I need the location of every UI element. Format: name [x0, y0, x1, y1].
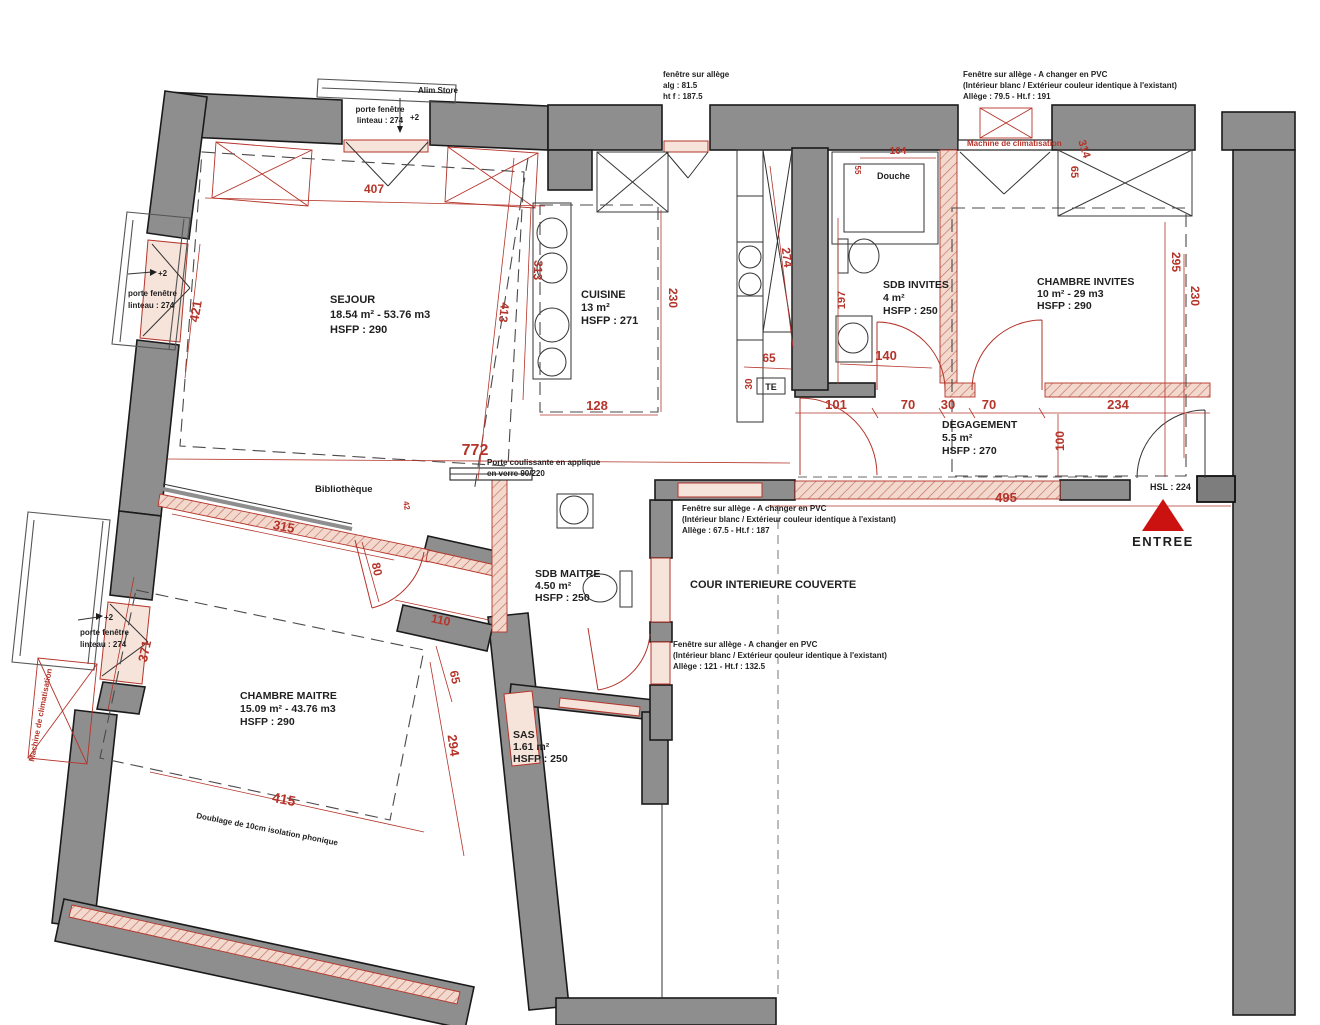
- porte-fenetre-wing-l1: porte fenêtre: [80, 628, 129, 637]
- dim-70b: 70: [982, 397, 996, 412]
- left-window-frame-upper-line: [120, 220, 133, 342]
- wall-top-left-b: [430, 101, 548, 150]
- porte-fenetre-top-l1: porte fenêtre: [356, 105, 405, 114]
- dim-30-mid: 30: [941, 397, 955, 412]
- degagement-name: DEGAGEMENT: [942, 419, 1018, 431]
- wall-cour-c: [650, 685, 672, 740]
- chambre-maitre-hsfp: HSFP : 290: [240, 716, 295, 728]
- wall-left-low: [110, 511, 161, 600]
- chambre-maitre-name: CHAMBRE MAITRE: [240, 690, 337, 702]
- window-cour-a: [651, 558, 670, 622]
- dim-100: 100: [1053, 431, 1067, 451]
- sas-area: 1.61 m²: [513, 741, 550, 753]
- kitchen-counter-left: [533, 203, 571, 379]
- sejour-name: SEJOUR: [330, 294, 375, 306]
- dim-30-te: 30: [744, 378, 755, 390]
- window-sejour-top: [344, 140, 428, 152]
- door-sdb-maitre: [588, 628, 650, 690]
- wall-cour-b: [650, 622, 672, 642]
- wall-top-center: [710, 105, 958, 150]
- dim-65-maitre: 65: [447, 669, 464, 685]
- machine-clim-top-label: Machine de climatisation: [967, 139, 1062, 148]
- pvc-top-l2: (Intérieur blanc / Extérieur couleur ide…: [963, 81, 1177, 90]
- partition-degagement-pier: [945, 383, 975, 397]
- sink-invites: [836, 316, 872, 362]
- room-label-cuisine: CUISINE 13 m² HSFP : 271: [581, 289, 638, 327]
- dim-274: 274: [779, 247, 796, 269]
- wall-wing-left: [52, 710, 117, 928]
- wall-top-notch-upper: [548, 105, 662, 150]
- room-label-chambre-invites: CHAMBRE INVITES 10 m² - 29 m3 HSFP : 290: [1037, 276, 1134, 312]
- plus2-arrow-wing: [78, 617, 98, 620]
- cuisine-name: CUISINE: [581, 289, 626, 301]
- dim-230-invites: 230: [1188, 286, 1202, 306]
- room-label-sdb-invites: SDB INVITES 4 m² HSFP : 250: [883, 279, 949, 317]
- pvc-mid-l3: Allège : 67.5 - Ht.f : 187: [682, 526, 770, 535]
- dim-101: 101: [825, 397, 847, 412]
- machine-clim-box-top-right: [980, 108, 1032, 138]
- sink-maitre: [557, 494, 593, 528]
- fixtures-layer: [450, 150, 938, 607]
- chambre-invites-area: 10 m² - 29 m3: [1037, 288, 1104, 300]
- wall-left-low2: [97, 682, 145, 714]
- fenetre-allege-l1: fenêtre sur allège: [663, 70, 730, 79]
- dim-128: 128: [586, 398, 608, 413]
- dim-295: 295: [1169, 252, 1183, 272]
- pvc-mid-l2: (Intérieur blanc / Extérieur couleur ide…: [682, 515, 896, 524]
- chambre-invites-hsfp: HSFP : 290: [1037, 300, 1092, 312]
- partition-sdb-chambre-invites: [940, 150, 957, 383]
- room-label-cour: COUR INTERIEURE COUVERTE: [690, 579, 856, 591]
- dim-65-invites: 65: [1068, 166, 1080, 178]
- sdb-invites-name: SDB INVITES: [883, 279, 949, 291]
- dim-42: 42: [401, 500, 412, 511]
- dim-80: 80: [369, 561, 386, 577]
- te-label: TE: [765, 382, 777, 392]
- pvc-mid-l1: Fenêtre sur allège - A changer en PVC: [682, 504, 827, 513]
- sdb-invites-hsfp: HSFP : 250: [883, 305, 938, 317]
- partition-entry-wall: [795, 481, 1060, 499]
- sdb-maitre-area: 4.50 m²: [535, 580, 572, 592]
- labels-layer: SEJOUR 18.54 m² - 53.76 m3 HSFP : 290 CU…: [27, 70, 1202, 848]
- porte-fenetre-left-l1: porte fenêtre: [128, 289, 177, 298]
- dim-407: 407: [364, 182, 384, 196]
- window-cuisine-top: [664, 141, 708, 152]
- dim-230-cuisine: 230: [666, 288, 680, 308]
- shower-douche: [832, 152, 938, 244]
- sdb-maitre-name: SDB MAITRE: [535, 568, 600, 580]
- porte-coulissante-l1: Porte coulissante en applique: [487, 458, 601, 467]
- dashed-chambre-invites: [952, 208, 1186, 476]
- pvc-bottom-l3: Allège : 121 - Ht.f : 132.5: [673, 662, 766, 671]
- door-entry: [1137, 410, 1205, 478]
- wall-top-right: [1052, 105, 1195, 150]
- degagement-hsfp: HSFP : 270: [942, 445, 997, 457]
- dim-315: 315: [272, 517, 296, 536]
- dim-104: 104: [890, 146, 907, 157]
- dim-65-cuisine: 65: [762, 351, 776, 365]
- dim-55: 55: [853, 166, 862, 175]
- door-chambre-invites: [972, 320, 1042, 390]
- windows-layer: [100, 140, 1052, 766]
- porte-coulissante-l2: en verre 90/220: [487, 469, 545, 478]
- doublage-sdbm-left: [492, 470, 507, 632]
- partition-degagement-right: [1045, 383, 1210, 397]
- plus2-arrowhead-top: [397, 126, 403, 133]
- dim-234: 234: [1107, 397, 1129, 412]
- room-label-degagement: DEGAGEMENT 5.5 m² HSFP : 270: [942, 419, 1018, 457]
- machine-clim-wing-label: Machine de climatisation: [27, 668, 54, 763]
- fenetre-allege-l2: alg : 81.5: [663, 81, 698, 90]
- dim-70a: 70: [901, 397, 915, 412]
- dim-415: 415: [271, 789, 297, 809]
- wall-entry-mid: [1060, 480, 1130, 500]
- left-window-frame-lower-line: [20, 520, 34, 656]
- dim-197: 197: [836, 291, 848, 309]
- wardrobe-chambre-invites: [1058, 150, 1192, 216]
- plus2-top: +2: [410, 113, 420, 122]
- window-swing-cuisine: [666, 152, 708, 178]
- porte-fenetre-left-l2: linteau : 274: [128, 301, 175, 310]
- sdb-invites-area: 4 m²: [883, 292, 905, 304]
- dim-313: 313: [531, 260, 546, 281]
- wall-cour-a: [650, 500, 672, 558]
- wall-entry-right-stub: [1197, 476, 1235, 502]
- room-label-bibliotheque: Bibliothèque: [315, 484, 373, 495]
- wall-right-vertical: [1233, 150, 1295, 1015]
- wardrobe-sejour-left: [212, 142, 312, 206]
- wardrobe-cuisine: [597, 152, 668, 212]
- pvc-top-l3: Allège : 79.5 - Ht.f : 191: [963, 92, 1051, 101]
- window-entry-wall: [678, 483, 762, 497]
- alim-store-label: Alim Store: [418, 86, 459, 95]
- plus2-left: +2: [158, 269, 168, 278]
- room-label-sejour: SEJOUR 18.54 m² - 53.76 m3 HSFP : 290: [330, 294, 430, 336]
- cuisine-area: 13 m²: [581, 302, 610, 314]
- entree-label: ENTREE: [1132, 534, 1194, 549]
- chambre-invites-name: CHAMBRE INVITES: [1037, 276, 1134, 288]
- wardrobes-layer: [212, 142, 1192, 216]
- fenetre-allege-l3: ht f : 187.5: [663, 92, 703, 101]
- entry-marker: [1142, 499, 1184, 531]
- hsl-label: HSL : 224: [1150, 482, 1191, 492]
- cuisine-hsfp: HSFP : 271: [581, 315, 638, 327]
- dim-421: 421: [186, 299, 205, 323]
- dim-413: 413: [496, 302, 512, 324]
- wall-top-notch-lower: [548, 150, 592, 190]
- wall-right-stub: [1222, 112, 1295, 150]
- room-label-chambre-maitre: CHAMBRE MAITRE 15.09 m² - 43.76 m3 HSFP …: [240, 690, 337, 728]
- dim-772: 772: [462, 442, 489, 459]
- dim-371: 371: [135, 639, 154, 663]
- wall-wing-right: [488, 613, 569, 1010]
- window-swing-invites: [960, 152, 1050, 194]
- dim-495: 495: [995, 490, 1017, 505]
- porte-fenetre-wing-l2: linteau : 274: [80, 640, 127, 649]
- pvc-bottom-l1: Fenêtre sur allège - A changer en PVC: [673, 640, 818, 649]
- wall-cour-bottom: [556, 998, 776, 1025]
- entry-arrow-icon: [1142, 499, 1184, 531]
- doublage-label: Doublage de 10cm isolation phonique: [196, 811, 340, 847]
- floor-plan-drawing: SEJOUR 18.54 m² - 53.76 m3 HSFP : 290 CU…: [0, 0, 1320, 1025]
- room-label-sdb-maitre: SDB MAITRE 4.50 m² HSFP : 250: [535, 568, 600, 604]
- sejour-area: 18.54 m² - 53.76 m3: [330, 309, 430, 321]
- wall-kitchen-sdb: [792, 148, 828, 390]
- window-cour-b: [651, 642, 670, 684]
- sejour-hsfp: HSFP : 290: [330, 324, 387, 336]
- room-label-douche: Douche: [877, 171, 910, 181]
- dashed-zones-layer: [100, 152, 1186, 996]
- pvc-top-l1: Fenêtre sur allège - A changer en PVC: [963, 70, 1108, 79]
- dim-294: 294: [445, 734, 463, 758]
- sas-hsfp: HSFP : 250: [513, 753, 568, 765]
- chambre-maitre-area: 15.09 m² - 43.76 m3: [240, 703, 336, 715]
- plus2-wing: +2: [104, 613, 114, 622]
- dim-140: 140: [875, 348, 897, 363]
- floor-plan-page: SEJOUR 18.54 m² - 53.76 m3 HSFP : 290 CU…: [0, 0, 1320, 1025]
- sas-name: SAS: [513, 729, 535, 741]
- walls-layer: [52, 91, 1295, 1025]
- porte-fenetre-top-l2: linteau : 274: [357, 116, 404, 125]
- pvc-bottom-l2: (Intérieur blanc / Extérieur couleur ide…: [673, 651, 887, 660]
- degagement-area: 5.5 m²: [942, 432, 973, 444]
- sdb-maitre-hsfp: HSFP : 250: [535, 592, 590, 604]
